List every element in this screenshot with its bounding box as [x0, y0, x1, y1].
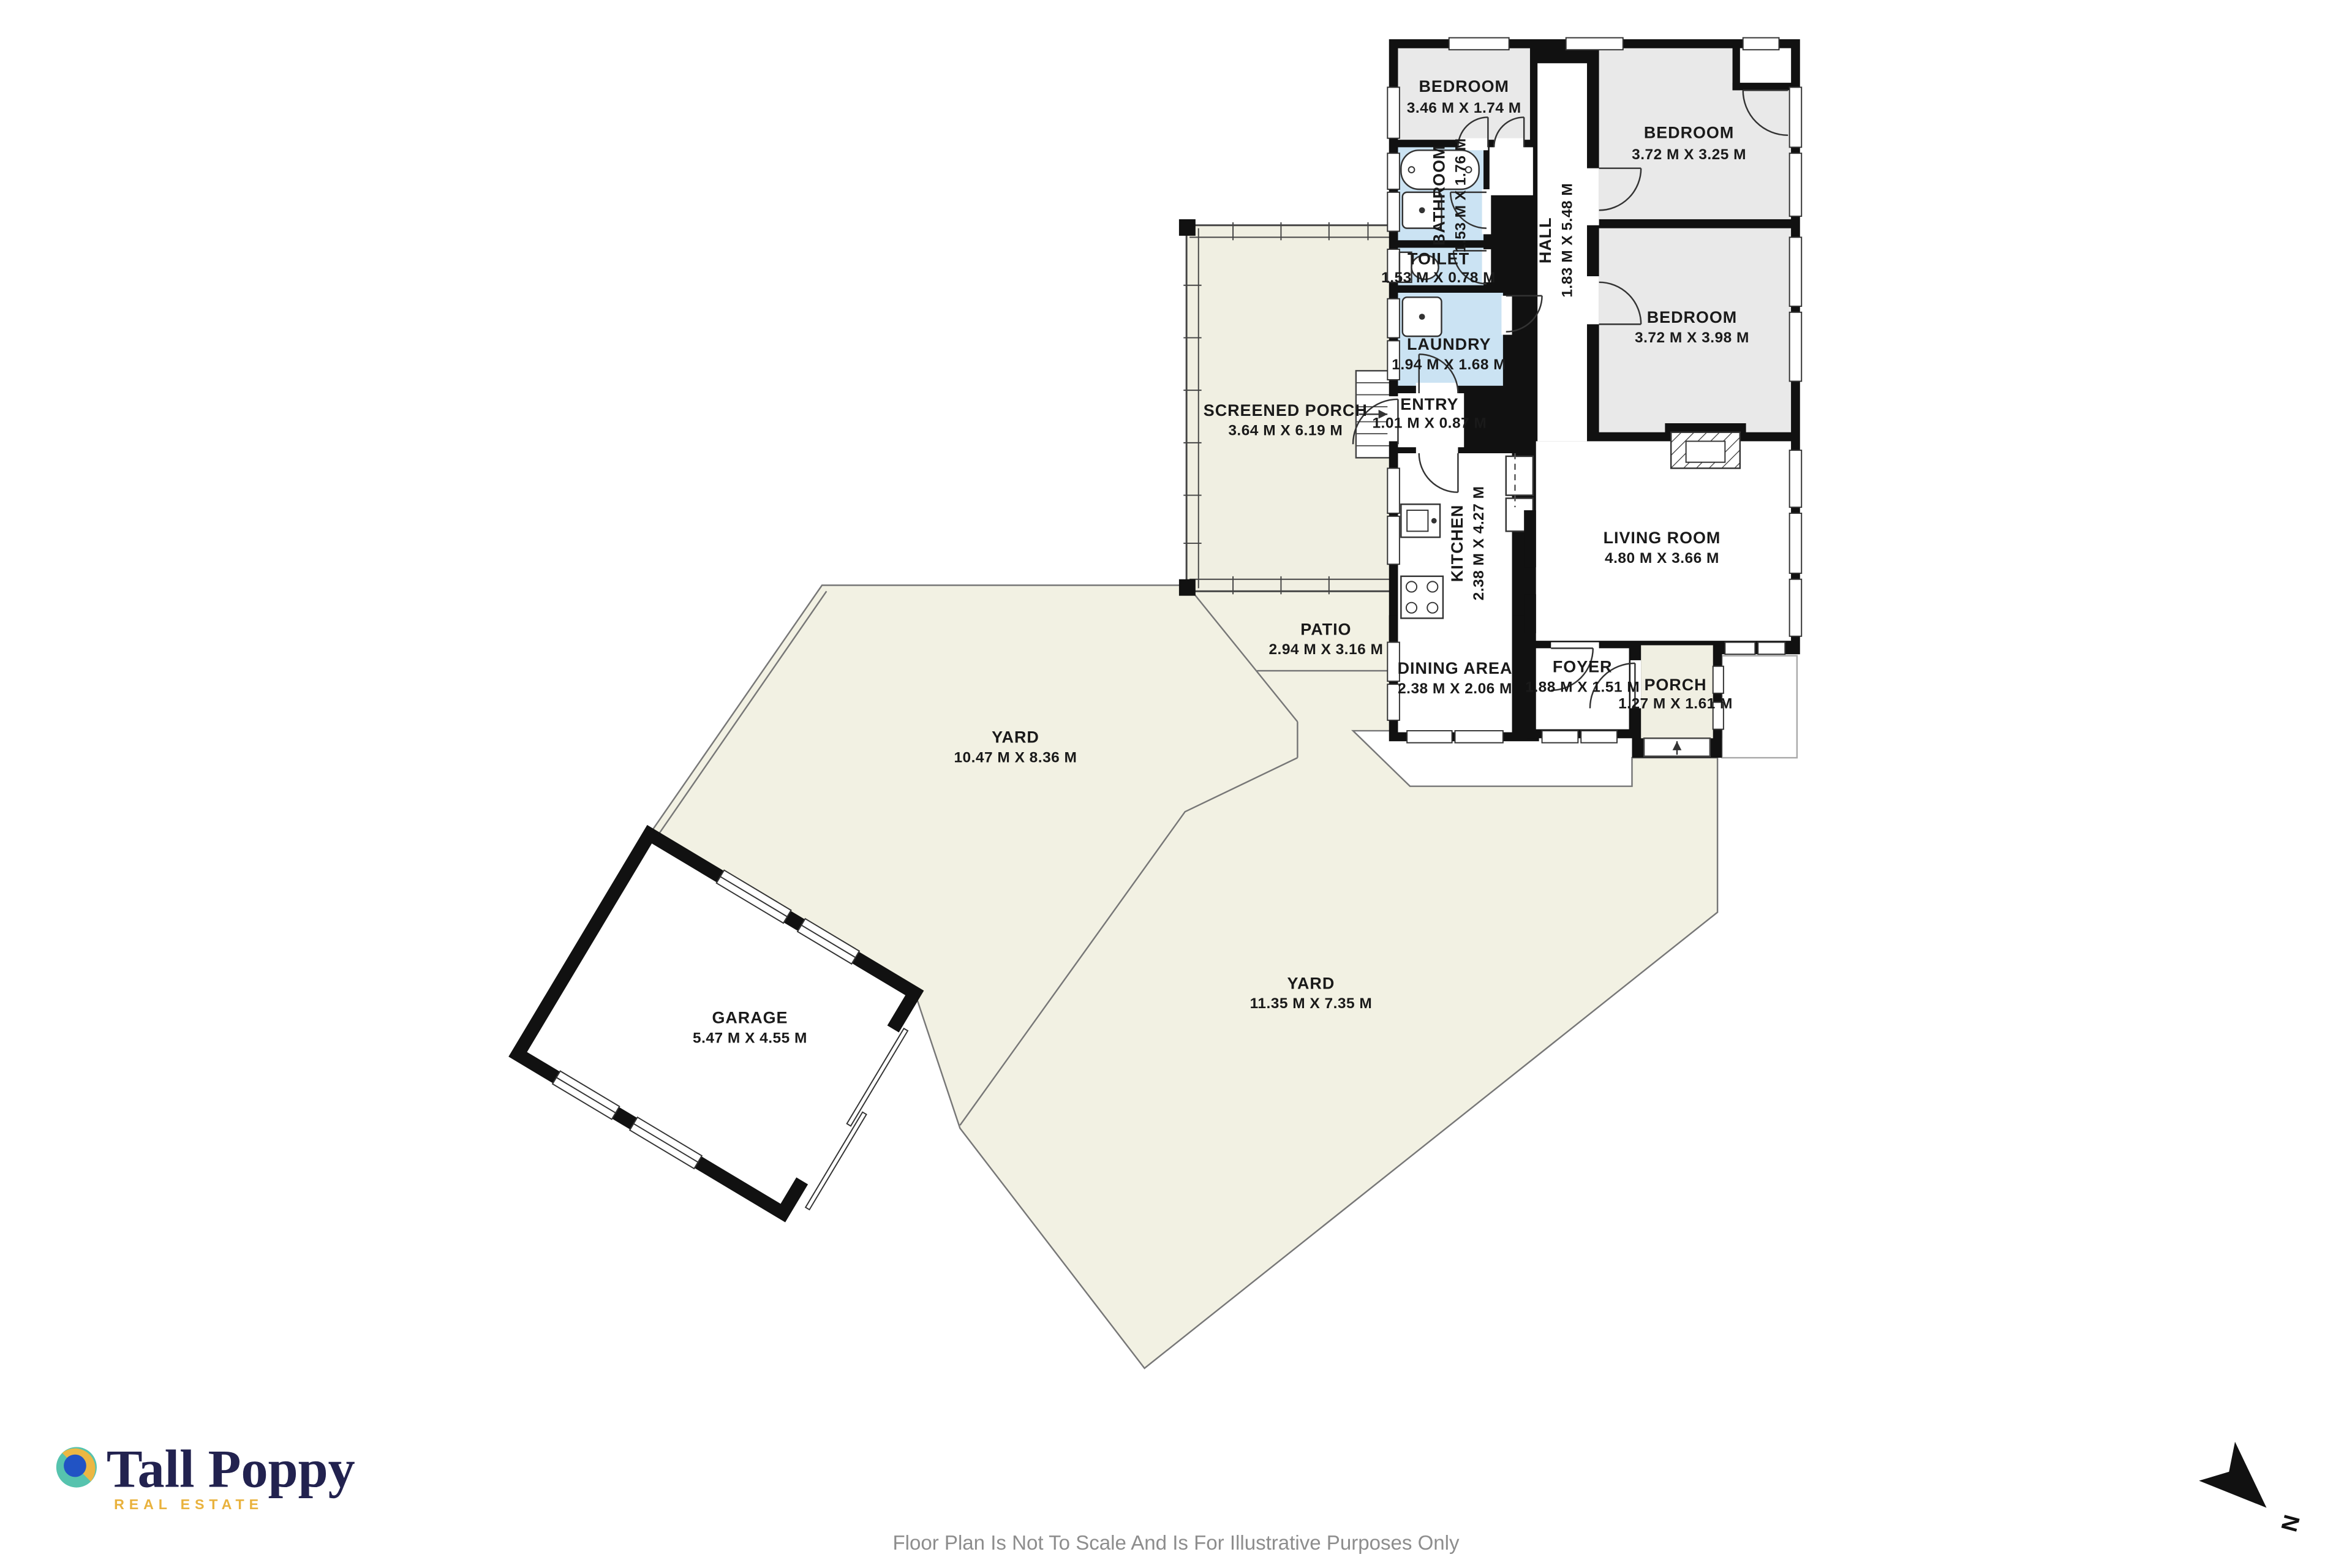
label-screened-porch: SCREENED PORCH [1204, 401, 1368, 420]
dims-hall: 1.83 M X 5.48 M [1559, 183, 1576, 298]
label-bedroom-1: BEDROOM [1419, 77, 1509, 96]
dims-yard-2: 11.35 M X 7.35 M [1250, 995, 1373, 1012]
dims-porch: 1.27 M X 1.61 M [1618, 695, 1733, 712]
label-bedroom-2: BEDROOM [1644, 124, 1734, 142]
north-label: N [2276, 1512, 2304, 1534]
logo-subtext: REAL ESTATE [114, 1496, 263, 1512]
dims-dining-area: 2.38 M X 2.06 M [1398, 680, 1512, 697]
stove [1401, 576, 1443, 619]
porch-step [1644, 738, 1710, 756]
dims-kitchen: 2.38 M X 4.27 M [1471, 486, 1487, 601]
label-laundry: LAUNDRY [1407, 335, 1491, 353]
label-hall: HALL [1536, 217, 1555, 263]
room-closet [1490, 147, 1533, 195]
label-foyer: FOYER [1553, 658, 1613, 676]
floor-plan-page: BEDROOM 3.46 M X 1.74 M BEDROOM 3.72 M X… [0, 0, 2352, 1568]
dims-foyer: 1.88 M X 1.51 M [1525, 679, 1640, 695]
dims-bedroom-2: 3.72 M X 3.25 M [1632, 146, 1746, 163]
floor-plan-canvas: BEDROOM 3.46 M X 1.74 M BEDROOM 3.72 M X… [0, 0, 2352, 1568]
dims-toilet: 1.53 M X 0.78 M [1381, 269, 1496, 286]
dims-living-room: 4.80 M X 3.66 M [1605, 550, 1719, 567]
dims-yard-1: 10.47 M X 8.36 M [954, 749, 1077, 766]
dims-bedroom-3: 3.72 M X 3.98 M [1635, 330, 1749, 346]
dims-patio: 2.94 M X 3.16 M [1268, 641, 1383, 658]
label-garage: GARAGE [712, 1009, 788, 1027]
dims-bathroom: 1.53 M X 1.76 M [1453, 138, 1469, 252]
dims-garage: 5.47 M X 4.55 M [693, 1030, 807, 1046]
fridge [1506, 456, 1533, 496]
label-living-room: LIVING ROOM [1604, 529, 1721, 547]
label-patio: PATIO [1300, 620, 1351, 638]
label-bathroom: BATHROOM [1430, 145, 1448, 246]
label-porch: PORCH [1644, 676, 1706, 694]
fireplace [1665, 423, 1746, 468]
label-yard-2: YARD [1287, 974, 1335, 992]
logo-icon [56, 1447, 97, 1487]
label-yard-1: YARD [992, 728, 1039, 747]
label-toilet: TOILET [1408, 249, 1469, 268]
dims-entry: 1.01 M X 0.87 M [1372, 415, 1487, 431]
label-bedroom-3: BEDROOM [1647, 308, 1737, 326]
logo: Tall Poppy REAL ESTATE [56, 1439, 355, 1512]
dims-laundry: 1.94 M X 1.68 M [1392, 356, 1506, 373]
footer-disclaimer: Floor Plan Is Not To Scale And Is For Il… [892, 1532, 1460, 1555]
north-arrow: N [2199, 1442, 2304, 1534]
room-bedroom-2-closet [1740, 48, 1791, 86]
logo-text: Tall Poppy [107, 1439, 355, 1499]
front-path [1722, 656, 1796, 758]
dims-screened-porch: 3.64 M X 6.19 M [1228, 423, 1343, 439]
label-kitchen: KITCHEN [1448, 505, 1466, 582]
label-dining-area: DINING AREA [1398, 659, 1513, 677]
dims-bedroom-1: 3.46 M X 1.74 M [1407, 100, 1521, 116]
label-entry: ENTRY [1400, 395, 1458, 413]
